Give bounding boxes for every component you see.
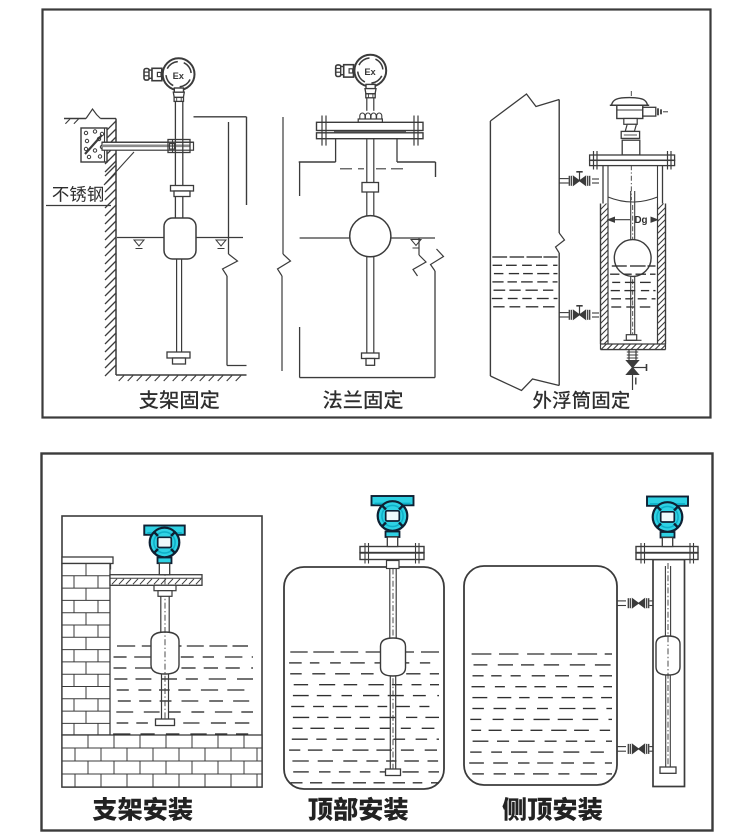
svg-text:Ex: Ex <box>364 67 376 77</box>
svg-text:Dg: Dg <box>634 215 647 226</box>
svg-text:Ex: Ex <box>173 71 185 81</box>
